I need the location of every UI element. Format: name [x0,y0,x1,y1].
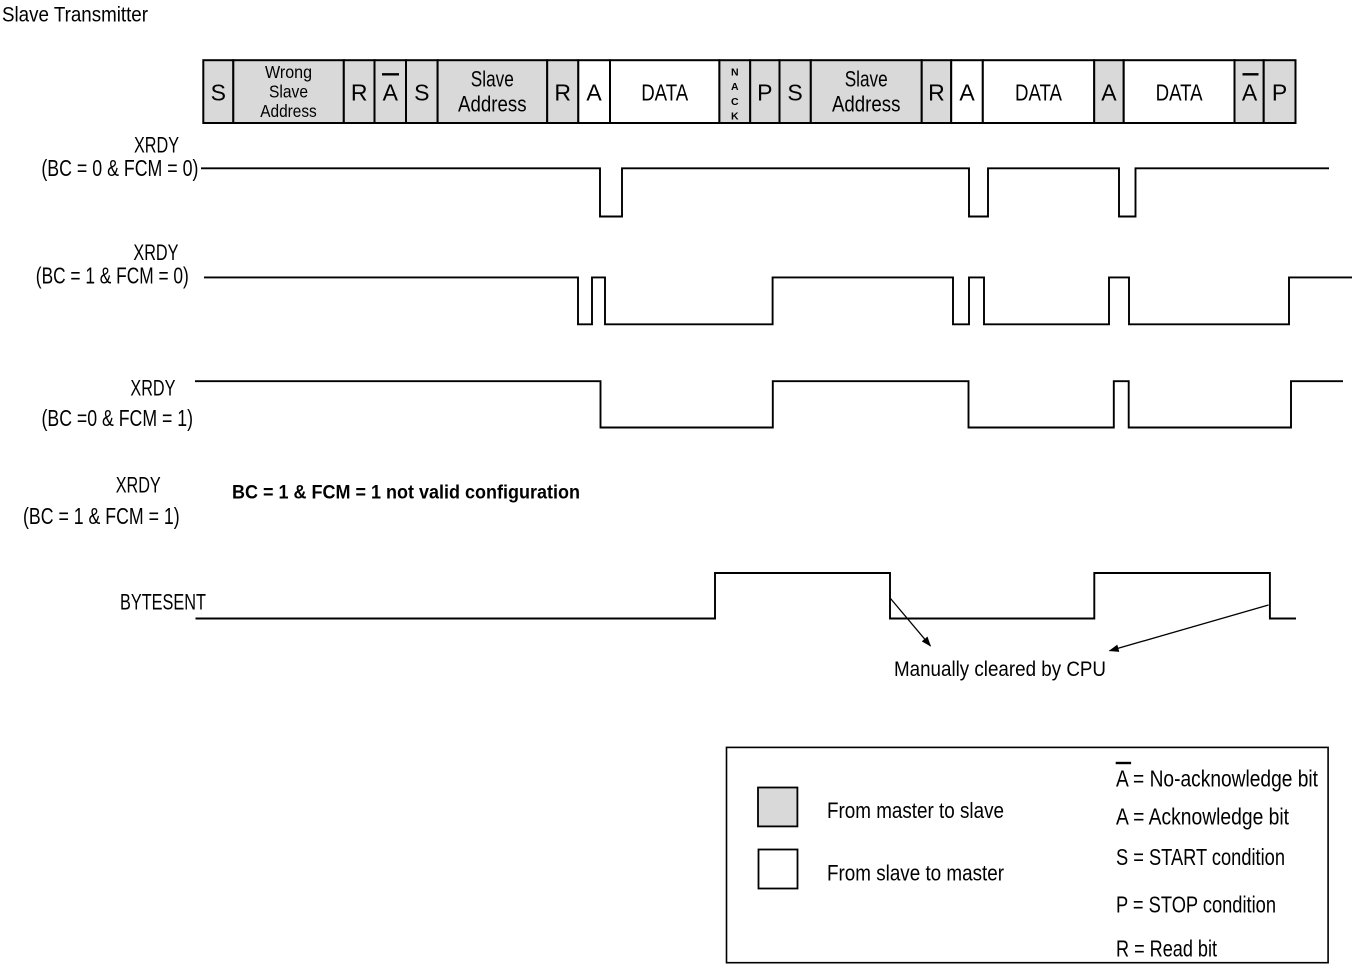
svg-text:S: S [414,79,429,105]
svg-text:From master to slave: From master to slave [827,798,1004,823]
svg-text:P: P [757,79,772,105]
svg-text:(BC =0 & FCM = 1): (BC =0 & FCM = 1) [42,405,194,431]
svg-text:R: R [554,79,571,105]
svg-text:Address: Address [260,101,317,121]
svg-text:P = STOP condition: P = STOP condition [1116,892,1276,918]
svg-text:BYTESENT: BYTESENT [120,590,206,615]
svg-text:R: R [928,79,945,105]
svg-text:XRDY: XRDY [133,240,178,265]
svg-text:K: K [731,111,739,123]
svg-text:Slave Transmitter: Slave Transmitter [2,4,148,27]
svg-text:A: A [1101,79,1117,105]
svg-text:(BC = 1 & FCM = 1): (BC = 1 & FCM = 1) [23,503,180,529]
svg-text:(BC = 0 & FCM = 0): (BC = 0 & FCM = 0) [41,155,198,181]
svg-text:A: A [959,79,975,105]
svg-text:BC = 1 & FCM = 1 not valid con: BC = 1 & FCM = 1 not valid configuration [232,482,580,504]
svg-text:C: C [731,96,739,108]
svg-text:Slave: Slave [269,82,308,102]
svg-text:Slave: Slave [471,67,514,92]
svg-text:A: A [1242,79,1258,105]
svg-text:DATA: DATA [1156,79,1204,105]
svg-text:R: R [351,79,368,105]
svg-text:A: A [383,79,399,105]
svg-text:DATA: DATA [1015,79,1063,105]
svg-text:A: A [731,81,739,93]
svg-text:XRDY: XRDY [130,375,175,400]
svg-text:N: N [731,67,739,79]
svg-text:S: S [211,79,226,105]
svg-text:S = START condition: S = START condition [1116,844,1285,870]
svg-text:XRDY: XRDY [116,472,161,497]
svg-text:S: S [787,79,802,105]
svg-text:(BC = 1 & FCM = 0): (BC = 1 & FCM = 0) [36,263,189,289]
svg-text:Manually cleared by CPU: Manually cleared by CPU [894,658,1106,681]
svg-text:Address: Address [832,92,901,117]
svg-text:Address: Address [458,92,527,117]
svg-text:XRDY: XRDY [134,133,179,158]
svg-text:R = Read bit: R = Read bit [1116,936,1217,962]
svg-text:Wrong: Wrong [265,62,312,82]
svg-text:A = No-acknowledge bit: A = No-acknowledge bit [1116,766,1318,792]
svg-text:P: P [1272,79,1287,105]
svg-text:A = Acknowledge bit: A = Acknowledge bit [1116,804,1290,830]
svg-text:DATA: DATA [641,79,689,105]
svg-text:From slave to master: From slave to master [827,861,1004,886]
svg-text:A: A [586,79,602,105]
svg-text:Slave: Slave [845,67,888,92]
